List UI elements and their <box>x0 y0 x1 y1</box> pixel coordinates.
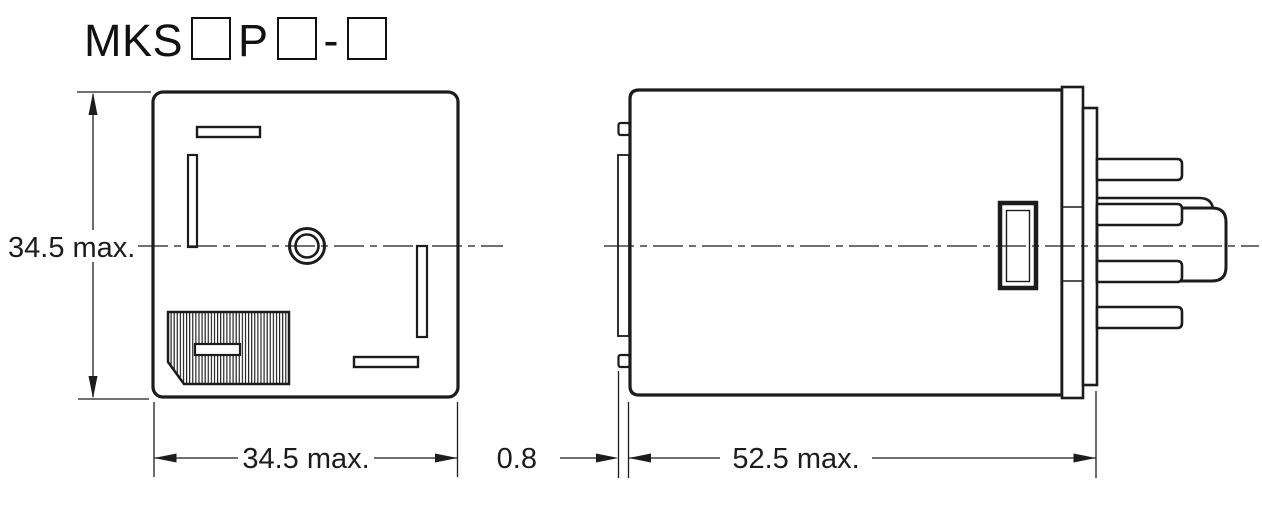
terminal-pin-2 <box>1097 204 1182 225</box>
front-right-slot <box>417 246 427 337</box>
terminal-pin-1 <box>1097 159 1182 180</box>
relay-dimension-drawing: 34.5 max. 34.5 max. <box>0 0 1262 506</box>
terminal-pin-4 <box>1097 307 1182 328</box>
label-window <box>195 344 240 355</box>
side-offset-dimension-label: 0.8 <box>497 443 537 475</box>
front-width-dimension-label: 34.5 max. <box>242 443 369 475</box>
front-top-slot <box>197 127 260 137</box>
arrowhead-right <box>1074 454 1097 463</box>
front-bottom-slot <box>354 357 418 367</box>
front-height-dimension: 34.5 max. <box>8 92 151 399</box>
side-body-outline <box>630 90 1062 395</box>
relay-base-strip <box>1062 87 1083 398</box>
arrowhead-down <box>89 376 98 399</box>
arrowhead-left <box>154 454 177 463</box>
terminal-pin-3 <box>1097 261 1182 282</box>
side-offset-dimension: 0.8 <box>497 371 629 478</box>
front-height-dimension-label: 34.5 max. <box>8 232 135 264</box>
front-view <box>138 92 503 397</box>
front-left-slot <box>188 155 197 247</box>
front-panel-tab-bottom <box>619 355 630 367</box>
side-length-dimension-label: 52.5 max. <box>732 443 859 475</box>
arrowhead-left <box>629 454 652 463</box>
arrowhead-up <box>89 93 98 116</box>
arrowhead-right <box>596 454 619 463</box>
drawing-canvas: MKSP- <box>0 0 1262 506</box>
front-width-dimension: 34.5 max. <box>154 402 458 477</box>
side-length-dimension: 52.5 max. <box>629 391 1097 478</box>
side-view <box>604 87 1259 398</box>
arrowhead-right <box>435 454 458 463</box>
front-panel-tab-top <box>619 123 630 135</box>
